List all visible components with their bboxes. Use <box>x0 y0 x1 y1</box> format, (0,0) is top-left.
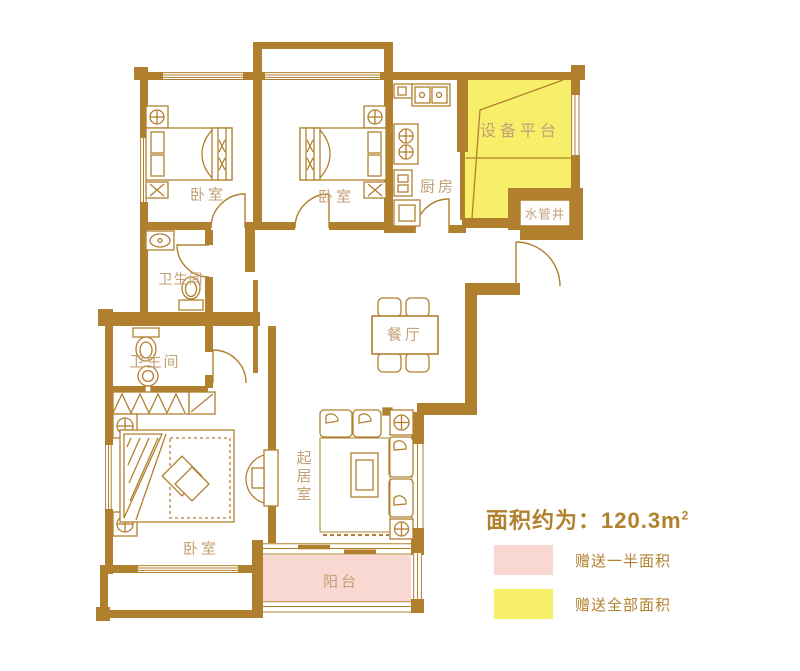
full-area-label: 赠送全部面积 <box>575 594 671 615</box>
kitchen-counter-icon <box>394 84 450 226</box>
wardrobe-icon <box>113 392 215 414</box>
window-master-bottom <box>138 565 238 573</box>
legend-item-half-area: 赠送一半面积 <box>494 545 671 575</box>
room-label-bathroom-upper: 卫生间 <box>159 269 204 289</box>
window-platform-right <box>571 95 580 155</box>
room-label-bedroom-1: 卧室 <box>190 184 226 205</box>
room-label-equipment-platform: 设备平台 <box>480 117 560 141</box>
room-label-living-room: 起居室 <box>295 450 313 504</box>
room-label-master-bedroom: 卧室 <box>183 538 219 559</box>
balcony-sliding-door <box>263 543 411 555</box>
room-label-bathroom-lower: 卫生间 <box>129 351 180 372</box>
bathroom2-door-arc <box>213 350 246 383</box>
window-balcony-right <box>413 553 422 599</box>
room-label-bedroom-2: 卧室 <box>318 186 354 207</box>
toilet-icon <box>133 328 159 337</box>
full-area-swatch <box>494 589 553 619</box>
furniture <box>113 84 450 539</box>
legend: 面积约为：120.3m2 赠送一半面积 赠送全部面积 <box>486 503 689 535</box>
window-bedroom2-top <box>265 72 380 80</box>
room-label-balcony: 阳台 <box>323 571 359 592</box>
half-area-label: 赠送一半面积 <box>575 550 671 571</box>
window-bedroom1-top <box>163 72 243 80</box>
area-title-text: 面积约为：120.3m <box>486 508 682 533</box>
wall-niche-icon <box>246 450 278 506</box>
room-label-water-pipe-shaft: 水管井 <box>525 204 566 223</box>
pipe-shaft-notch <box>508 230 520 240</box>
half-area-swatch <box>494 545 553 575</box>
window-master-left <box>105 445 113 509</box>
area-title-sup: 2 <box>682 509 690 523</box>
bathroom1-door-opening <box>205 245 213 277</box>
balcony-railing <box>263 601 411 613</box>
sofa-icon <box>320 408 413 539</box>
bed-icon <box>113 414 234 536</box>
entry-door-arc <box>516 242 560 286</box>
room-label-kitchen: 厨房 <box>420 176 456 197</box>
room-label-dining-room: 餐厅 <box>387 324 423 345</box>
legend-item-full-area: 赠送全部面积 <box>494 589 671 619</box>
floor-plan-page: 卧室 卧室 厨房 设备平台 水管井 餐厅 卫生间 卫生间 卧室 起居室 阳台 面… <box>0 0 800 671</box>
bedroom1-door-opening <box>211 222 245 230</box>
bathroom2-door-opening <box>205 352 213 375</box>
toilet-icon <box>179 300 203 310</box>
bedroom2-door-opening <box>295 222 329 230</box>
bed-icon <box>300 106 386 198</box>
area-title: 面积约为：120.3m2 <box>486 503 689 535</box>
